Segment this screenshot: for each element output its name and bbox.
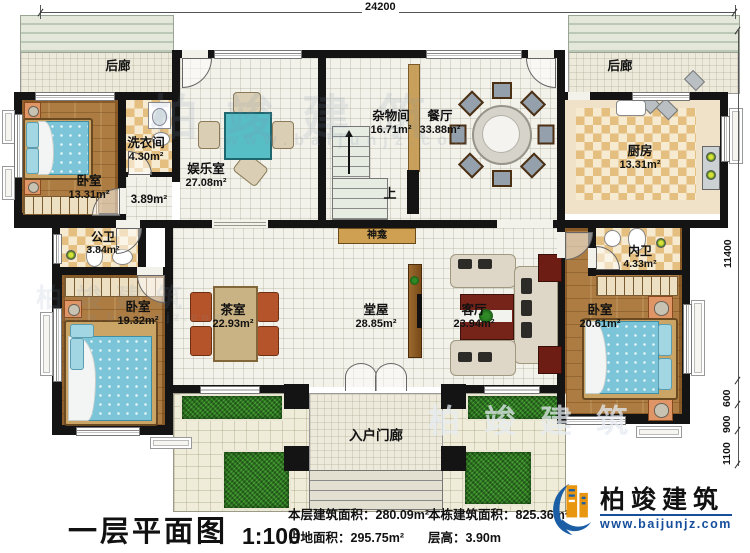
room-label-laundry: 洗衣间4.30m²	[127, 136, 165, 164]
window	[14, 114, 23, 178]
wall	[588, 270, 686, 275]
stat-floor-area: 本层建筑面积：280.09m²	[288, 504, 429, 523]
window	[484, 386, 540, 394]
window	[632, 92, 690, 101]
window-sill	[729, 108, 743, 164]
kitchen-sink-icon	[616, 100, 646, 116]
window	[426, 50, 522, 59]
room-label-tea-room: 茶室22.93m²	[213, 303, 254, 331]
pillow	[70, 324, 94, 338]
pillow	[658, 324, 672, 356]
opening	[137, 267, 163, 275]
wall	[407, 170, 419, 214]
sink-icon	[604, 230, 621, 247]
window	[721, 116, 730, 162]
window-sill	[691, 300, 705, 376]
window	[566, 416, 626, 425]
stove-burner	[706, 152, 716, 162]
sofa-cushion	[521, 278, 532, 294]
dining-chair	[492, 170, 512, 187]
dim-right-1100: 1100	[721, 429, 733, 465]
plan-title-block: 一层平面图 1:100	[66, 508, 307, 553]
window-sill	[636, 426, 682, 438]
stairs-up-label: 上	[383, 186, 396, 201]
opening	[557, 232, 565, 258]
nightstand	[648, 296, 673, 319]
back-porch-left-roof	[20, 15, 174, 53]
grass-strip-right	[466, 394, 566, 421]
stove-burner	[706, 170, 716, 180]
pillow	[26, 148, 39, 174]
room-label-dining: 餐厅33.88m²	[420, 109, 461, 137]
dim-top-value: 24200	[362, 1, 399, 13]
room-label-public-bath: 公卫3.84m²	[86, 230, 119, 257]
nightstand	[64, 300, 82, 318]
room-label-entry-porch: 入户门廊	[349, 428, 403, 444]
dining-chair	[538, 125, 555, 145]
chair	[198, 121, 220, 149]
shrine-cabinet: 神龛	[338, 228, 416, 244]
room-label-porch-left: 后廊	[105, 59, 130, 74]
stairs-arrow	[348, 136, 350, 174]
sliding-door	[214, 225, 266, 226]
porch-column	[441, 384, 466, 409]
plant-icon	[410, 276, 419, 285]
stairs-arrow-head	[345, 130, 353, 137]
pillow	[658, 358, 672, 390]
sofa-cushion	[478, 352, 492, 362]
nightstand	[24, 102, 41, 119]
dining-chair	[492, 82, 512, 99]
entry-door-leaf	[345, 363, 377, 391]
chair	[233, 92, 261, 114]
entry-door-leaf	[375, 363, 407, 391]
window	[200, 386, 260, 394]
room-label-main-hall: 堂屋28.85m²	[356, 303, 397, 331]
wall	[557, 50, 565, 228]
nightstand	[24, 178, 41, 195]
window-sill	[40, 312, 53, 376]
pillow	[26, 122, 39, 148]
dining-table-top	[482, 115, 520, 153]
side-table	[538, 254, 562, 282]
porch-column	[441, 446, 466, 471]
bath-lamp-icon	[66, 250, 76, 260]
room-label-living: 客厅23.94m²	[454, 303, 495, 331]
wall	[318, 58, 326, 222]
room-label-bedroom-tl: 卧室13.31m²	[69, 174, 110, 202]
porch-column	[284, 384, 309, 409]
brand-logo-icon	[548, 482, 594, 536]
grass-strip-left	[180, 394, 284, 421]
room-label-bedroom-br: 卧室20.61m²	[580, 303, 621, 331]
stats-column-left: 本层建筑面积：280.09m² 占地面积：295.75m²	[288, 504, 429, 546]
window	[76, 427, 140, 436]
window	[35, 92, 115, 101]
room-label-kitchen: 厨房13.31m²	[620, 144, 661, 172]
bath-lamp-icon	[656, 238, 666, 248]
side-table	[538, 346, 562, 374]
wardrobe	[596, 276, 678, 296]
sofa-cushion	[521, 322, 532, 338]
sofa-cushion	[521, 300, 532, 316]
chair	[272, 121, 294, 149]
stairs-lower-flight	[332, 178, 388, 220]
door-gap	[116, 220, 140, 228]
tea-chair	[257, 326, 279, 356]
brand-website: www.baijunjz.com	[600, 514, 732, 531]
room-label-hallway: 3.89m²	[131, 194, 167, 208]
window	[214, 50, 302, 59]
sofa-cushion	[458, 259, 472, 269]
window	[53, 308, 62, 382]
door-gap	[588, 248, 596, 268]
dim-right-main: 11400	[722, 224, 734, 268]
window	[53, 234, 62, 264]
sofa-cushion	[458, 352, 472, 362]
door-gap	[182, 50, 208, 58]
room-label-bedroom-bl: 卧室19.32m²	[118, 300, 159, 328]
room-label-ensuite: 内卫4.33m²	[623, 244, 656, 271]
pillow	[70, 338, 84, 370]
sliding-door	[214, 222, 266, 223]
door-gap	[528, 50, 554, 58]
washing-machine-icon	[148, 102, 171, 129]
back-porch-right-roof	[568, 15, 740, 53]
floor-plan: 24200 11400 600 900 1100 后廊 后廊 入户门廊	[0, 0, 750, 553]
plan-title: 一层平面图	[68, 508, 228, 550]
tv-icon	[417, 294, 422, 328]
wall	[172, 50, 180, 182]
opening	[497, 220, 553, 228]
grass-square-right	[463, 450, 533, 506]
tea-chair	[190, 326, 212, 356]
room-label-storage: 杂物间16.71m²	[371, 109, 412, 137]
brand-block: 柏竣建筑 www.baijunjz.com	[548, 482, 732, 536]
stat-land-area: 占地面积：295.75m²	[288, 527, 429, 546]
brand-name: 柏竣建筑	[600, 487, 732, 513]
porch-column	[284, 446, 309, 471]
window	[683, 304, 692, 374]
mahjong-table	[224, 112, 272, 160]
wall	[165, 222, 173, 435]
sofa-cushion	[478, 259, 492, 269]
window-sill	[150, 437, 192, 449]
room-label-entertainment: 娱乐室27.08m²	[186, 162, 227, 190]
tea-chair	[190, 292, 212, 322]
room-label-porch-right: 后廊	[607, 59, 632, 74]
nightstand	[648, 398, 673, 421]
dim-tick	[735, 461, 741, 469]
door-gap	[568, 92, 590, 100]
tea-chair	[257, 292, 279, 322]
grass-square-left	[222, 450, 291, 510]
